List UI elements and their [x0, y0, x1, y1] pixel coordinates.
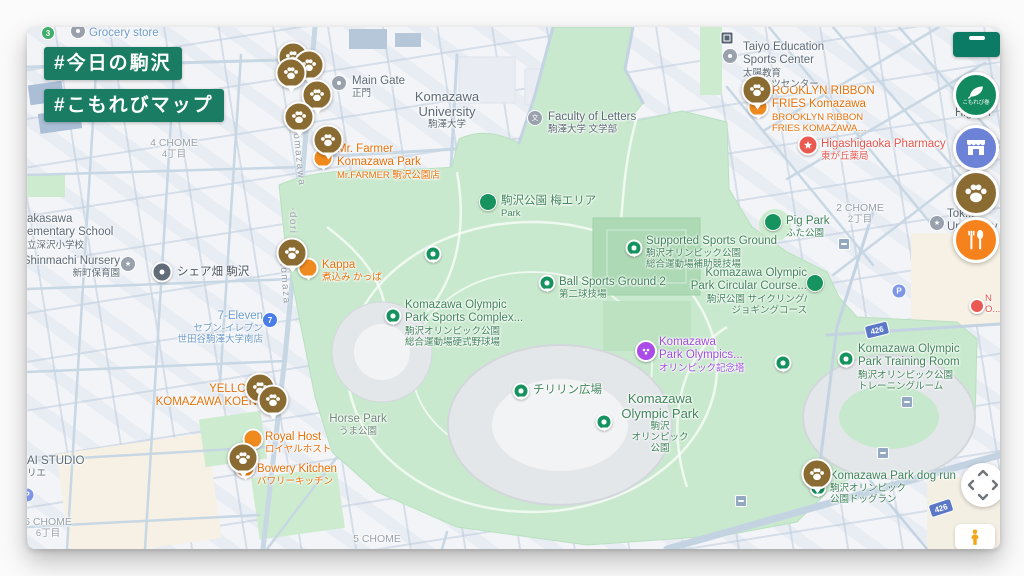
tree-icon-ume-area[interactable] — [479, 193, 497, 211]
pan-arrows-icon — [961, 463, 1000, 507]
paw-marker-kappa[interactable] — [277, 238, 308, 269]
bus-stop-icon — [901, 396, 913, 408]
red-poi-pin[interactable] — [969, 298, 985, 314]
poi-label-training-room[interactable]: Komazawa Olympic Park Training Room 駒沢オリ… — [858, 343, 960, 392]
park-poi-dot[interactable] — [596, 414, 613, 431]
poi-label-main-gate[interactable]: Main Gate 正門 — [352, 75, 405, 99]
paw-icon — [284, 245, 301, 262]
poi-label-royal-host[interactable]: Royal Host ロイヤルホスト — [265, 431, 331, 455]
paw-icon — [963, 180, 989, 206]
poi-label-elementary-school[interactable]: akasawa ementary School 立深沢小学校 — [27, 213, 113, 251]
paw-marker-3[interactable] — [276, 58, 307, 89]
poi-label-faculty-of-letters[interactable]: Faculty of Letters 駒澤大学 文学部 — [548, 111, 636, 135]
poi-label-supported-sports-ground[interactable]: Supported Sports Ground 駒沢オリンピック公園 総合運動場… — [646, 235, 777, 270]
area-label-4chome: 4 CHOME 4丁目 — [150, 137, 198, 160]
main-gate-icon[interactable] — [331, 75, 347, 91]
poi-label-pig-park[interactable]: Pig Park ふた公園 — [786, 215, 829, 239]
share-farm-icon[interactable] — [152, 262, 173, 283]
area-label-2chome: 2 CHOME 2丁目 — [836, 202, 884, 225]
minimize-icon — [969, 36, 985, 40]
paw-icon — [291, 109, 308, 126]
pegman-button[interactable] — [955, 524, 995, 549]
pharmacy-pin[interactable] — [798, 135, 819, 156]
park-poi-dot-ball-ground[interactable] — [539, 275, 556, 292]
hashtag-badge-2[interactable]: #こもれびマップ — [44, 89, 224, 122]
paw-marker-yellow-2[interactable] — [258, 385, 289, 416]
tree-icon-pig-park[interactable] — [764, 213, 782, 231]
restaurants-filter-button[interactable] — [953, 217, 999, 263]
area-label-5chome: 5 CHOME — [353, 533, 401, 545]
poi-label-yellow-komazawa-koen[interactable]: YELLOW KOMAZAWA KOEN — [132, 383, 257, 410]
paw-icon — [749, 82, 766, 99]
shinmachi-nursery-icon[interactable]: ★ — [120, 256, 136, 272]
star-icon — [804, 141, 813, 150]
poi-label-bowery-kitchen[interactable]: Bowery Kitchen バワリーキッチン — [257, 463, 337, 487]
poi-label-dog-run[interactable]: Komazawa Park dog run 駒沢オリンピック 公園ドッグラン — [830, 470, 956, 505]
leaf-icon — [965, 84, 987, 101]
paw-marker-brooklyn[interactable] — [742, 75, 773, 106]
park-poi-dot-sports-complex[interactable] — [385, 308, 402, 325]
paw-icon — [283, 65, 300, 82]
map-viewport[interactable]: #今日の駒沢 #こもれびマップ Grocery store 4 CHOME 4丁… — [27, 27, 1000, 549]
poi-label-share-farm[interactable]: シェア畑 駒沢 — [177, 266, 249, 279]
pan-control[interactable] — [961, 463, 1000, 507]
poi-label-red-fragment: N O... — [985, 293, 1000, 315]
legend-filter-leaf-button[interactable]: こもれび巻 — [953, 72, 999, 118]
hashtag-badge-1[interactable]: #今日の駒沢 — [44, 47, 182, 80]
poi-label-chirurin-square[interactable]: チリリン広場 — [533, 384, 602, 397]
poi-label-ai-studio[interactable]: AI STUDIO リエ — [27, 455, 85, 479]
poi-label-grocery-store[interactable]: Grocery store — [89, 27, 159, 40]
tree-icon-circular-course[interactable] — [806, 274, 824, 292]
bus-stop-icon — [735, 495, 747, 507]
area-label-6chome: 6 CHOME 6丁目 — [27, 516, 72, 539]
poi-label-circular-course[interactable]: Komazawa Olympic Park Circular Course...… — [682, 267, 807, 316]
poi-label-kappa[interactable]: Kappa 煮込み かっぱ — [322, 259, 382, 283]
taiyo-center-icon[interactable] — [722, 48, 738, 64]
poi-label-ume-area[interactable]: 駒沢公園 梅エリア Park — [501, 195, 596, 219]
poi-label-higashigaoka-pharmacy[interactable]: Higashigaoka Pharmacy 東が丘薬局 — [821, 138, 946, 162]
park-poi-dot-chirurin[interactable] — [513, 383, 530, 400]
fork-spoon-icon — [965, 229, 987, 251]
park-label-komazawa-olympic-park[interactable]: Komazawa Olympic Park 駒沢 オリンピック 公園 — [621, 391, 698, 454]
paw-icon — [320, 132, 337, 149]
paw-marker-6[interactable] — [313, 125, 344, 156]
street-label-komazawa-dori-2: -dori — [287, 207, 298, 235]
poi-label-komazawa-university[interactable]: Komazawa University 駒澤大学 — [415, 89, 479, 130]
paw-spots-filter-button[interactable] — [953, 170, 999, 216]
screenshot-page: #今日の駒沢 #こもれびマップ Grocery store 4 CHOME 4丁… — [0, 0, 1024, 576]
poi-label-ball-sports-ground[interactable]: Ball Sports Ground 2 第二球技場 — [559, 276, 666, 300]
poi-label-brooklyn-ribbon-fries[interactable]: ROOKLYN RIBBON FRIES Komazawa BROOKLYN R… — [772, 85, 875, 134]
park-poi-dot-supported-ground[interactable] — [626, 240, 643, 257]
subway-station-icon[interactable] — [721, 32, 734, 45]
shops-filter-button[interactable] — [953, 125, 999, 171]
paw-icon — [265, 392, 282, 409]
storefront-icon — [965, 138, 987, 158]
legend-filter-label: こもれび巻 — [962, 100, 989, 105]
parking-icon[interactable]: P — [892, 284, 907, 299]
poi-label-sports-complex[interactable]: Komazawa Olympic Park Sports Complex... … — [405, 299, 523, 348]
legend-panel-collapsed[interactable] — [953, 32, 1000, 57]
bus-stop-icon — [877, 447, 889, 459]
memorial-tower-pin[interactable] — [635, 340, 657, 362]
poi-label-seven-eleven[interactable]: 7-Eleven セブン-イレブン 世田谷駒澤大学南店 — [143, 310, 263, 345]
park-poi-dot[interactable] — [425, 246, 442, 263]
poi-label-olympics-memorial[interactable]: Komazawa Park Olympics... オリンピック記念塔 — [659, 336, 745, 374]
paw-icon — [309, 87, 326, 104]
university-star-icon[interactable]: ★ — [929, 215, 945, 231]
paw-marker-dog-run[interactable] — [802, 459, 833, 490]
seven-eleven-icon[interactable]: 7 — [262, 312, 278, 328]
poi-label-horse-park[interactable]: Horse Park うま公園 — [329, 413, 387, 437]
faculty-icon[interactable]: 文 — [527, 110, 543, 126]
pegman-icon — [968, 527, 982, 547]
poi-label-mr-farmer[interactable]: Mr. Farmer Komazawa Park Mr.FARMER 駒沢公園店 — [337, 143, 440, 181]
tower-icon — [641, 347, 651, 356]
paw-marker-bowery[interactable] — [228, 443, 259, 474]
paw-icon — [809, 466, 826, 483]
poi-label-shinmachi-nursery[interactable]: Shinmachi Nursery 新町保育園 — [27, 255, 120, 279]
paw-marker-5[interactable] — [284, 102, 315, 133]
paw-icon — [235, 450, 252, 467]
park-poi-dot-training-room[interactable] — [838, 351, 855, 368]
park-poi-dot[interactable] — [775, 355, 792, 372]
bus-stop-icon — [838, 238, 850, 250]
